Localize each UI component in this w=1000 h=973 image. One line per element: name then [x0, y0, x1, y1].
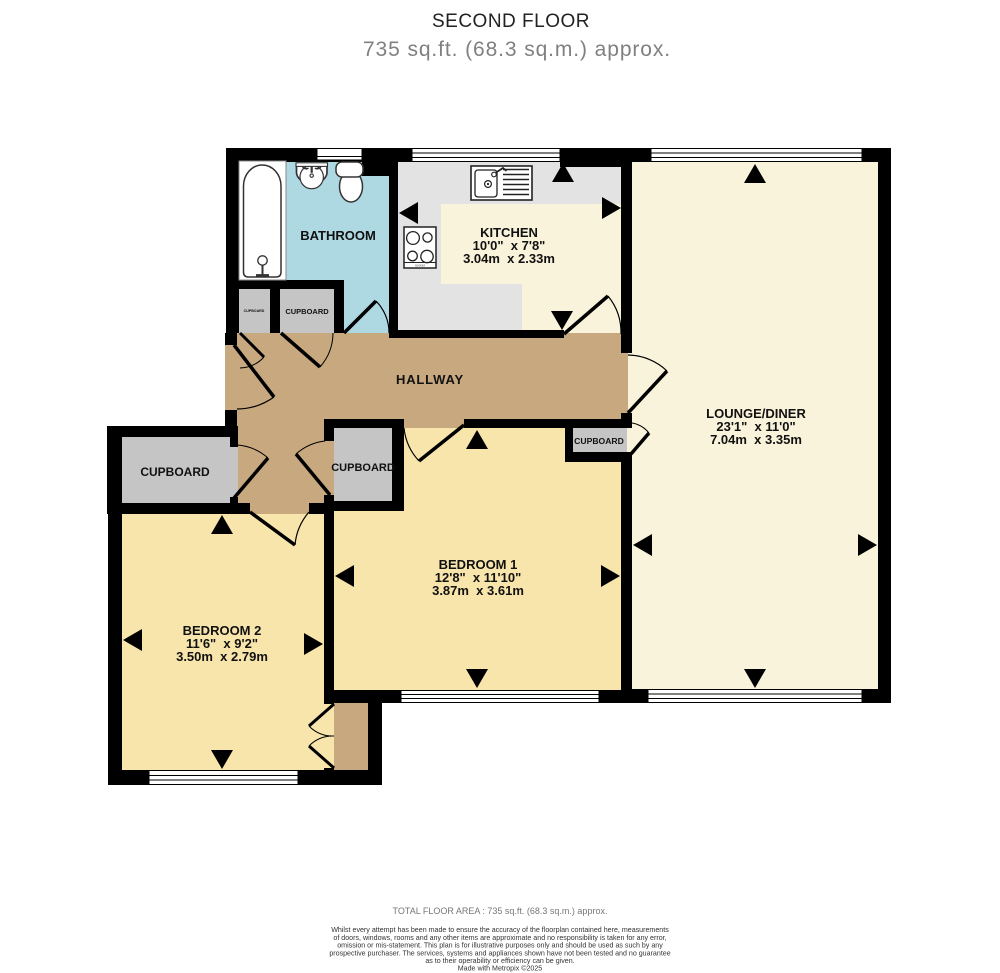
svg-text:SECOND FLOOR: SECOND FLOOR	[432, 11, 590, 32]
svg-text:CUPBOARD: CUPBOARD	[331, 462, 395, 474]
svg-text:HALLWAY: HALLWAY	[396, 372, 464, 387]
svg-text:CUPBOARD: CUPBOARD	[244, 309, 265, 313]
svg-text:CUPBOARD: CUPBOARD	[574, 436, 624, 446]
svg-text:CUPBOARD: CUPBOARD	[285, 307, 329, 316]
svg-text:CUPBOARD: CUPBOARD	[140, 465, 210, 479]
svg-text:600MM: 600MM	[415, 264, 426, 268]
svg-text:7.04m x 3.35m: 7.04m x 3.35m	[710, 432, 802, 447]
svg-text:735 sq.ft. (68.3 sq.m.) approx: 735 sq.ft. (68.3 sq.m.) approx.	[363, 38, 671, 61]
svg-text:3.50m x 2.79m: 3.50m x 2.79m	[176, 649, 268, 664]
svg-text:3.87m x 3.61m: 3.87m x 3.61m	[432, 583, 524, 598]
svg-text:Made with Metropix ©2025: Made with Metropix ©2025	[458, 965, 543, 973]
svg-text:TOTAL FLOOR AREA : 735 sq.ft.: TOTAL FLOOR AREA : 735 sq.ft. (68.3 sq.m…	[393, 906, 608, 916]
svg-text:3.04m x 2.33m: 3.04m x 2.33m	[463, 251, 555, 266]
svg-text:BATHROOM: BATHROOM	[300, 228, 376, 243]
